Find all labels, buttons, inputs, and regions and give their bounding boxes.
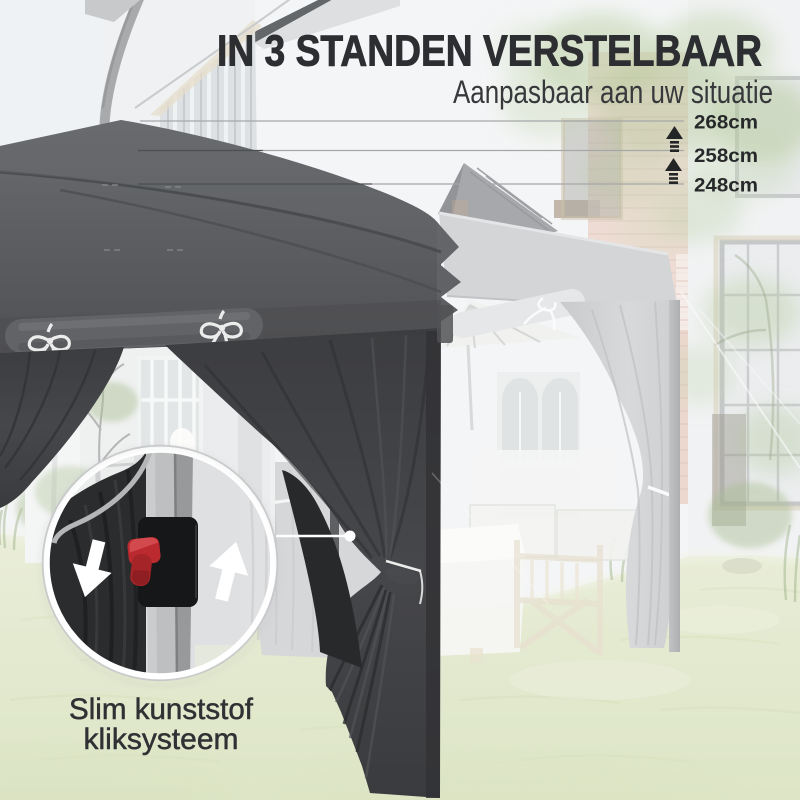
svg-text:268cm: 268cm	[694, 112, 758, 134]
svg-text:Slim kunststof: Slim kunststof	[69, 693, 254, 726]
svg-text:258cm: 258cm	[694, 145, 758, 167]
svg-text:kliksysteem: kliksysteem	[84, 723, 239, 756]
svg-text:Aanpasbaar aan uw situatie: Aanpasbaar aan uw situatie	[453, 74, 773, 110]
svg-text:248cm: 248cm	[694, 175, 758, 197]
svg-text:IN 3 STANDEN VERSTELBAAR: IN 3 STANDEN VERSTELBAAR	[217, 27, 762, 76]
